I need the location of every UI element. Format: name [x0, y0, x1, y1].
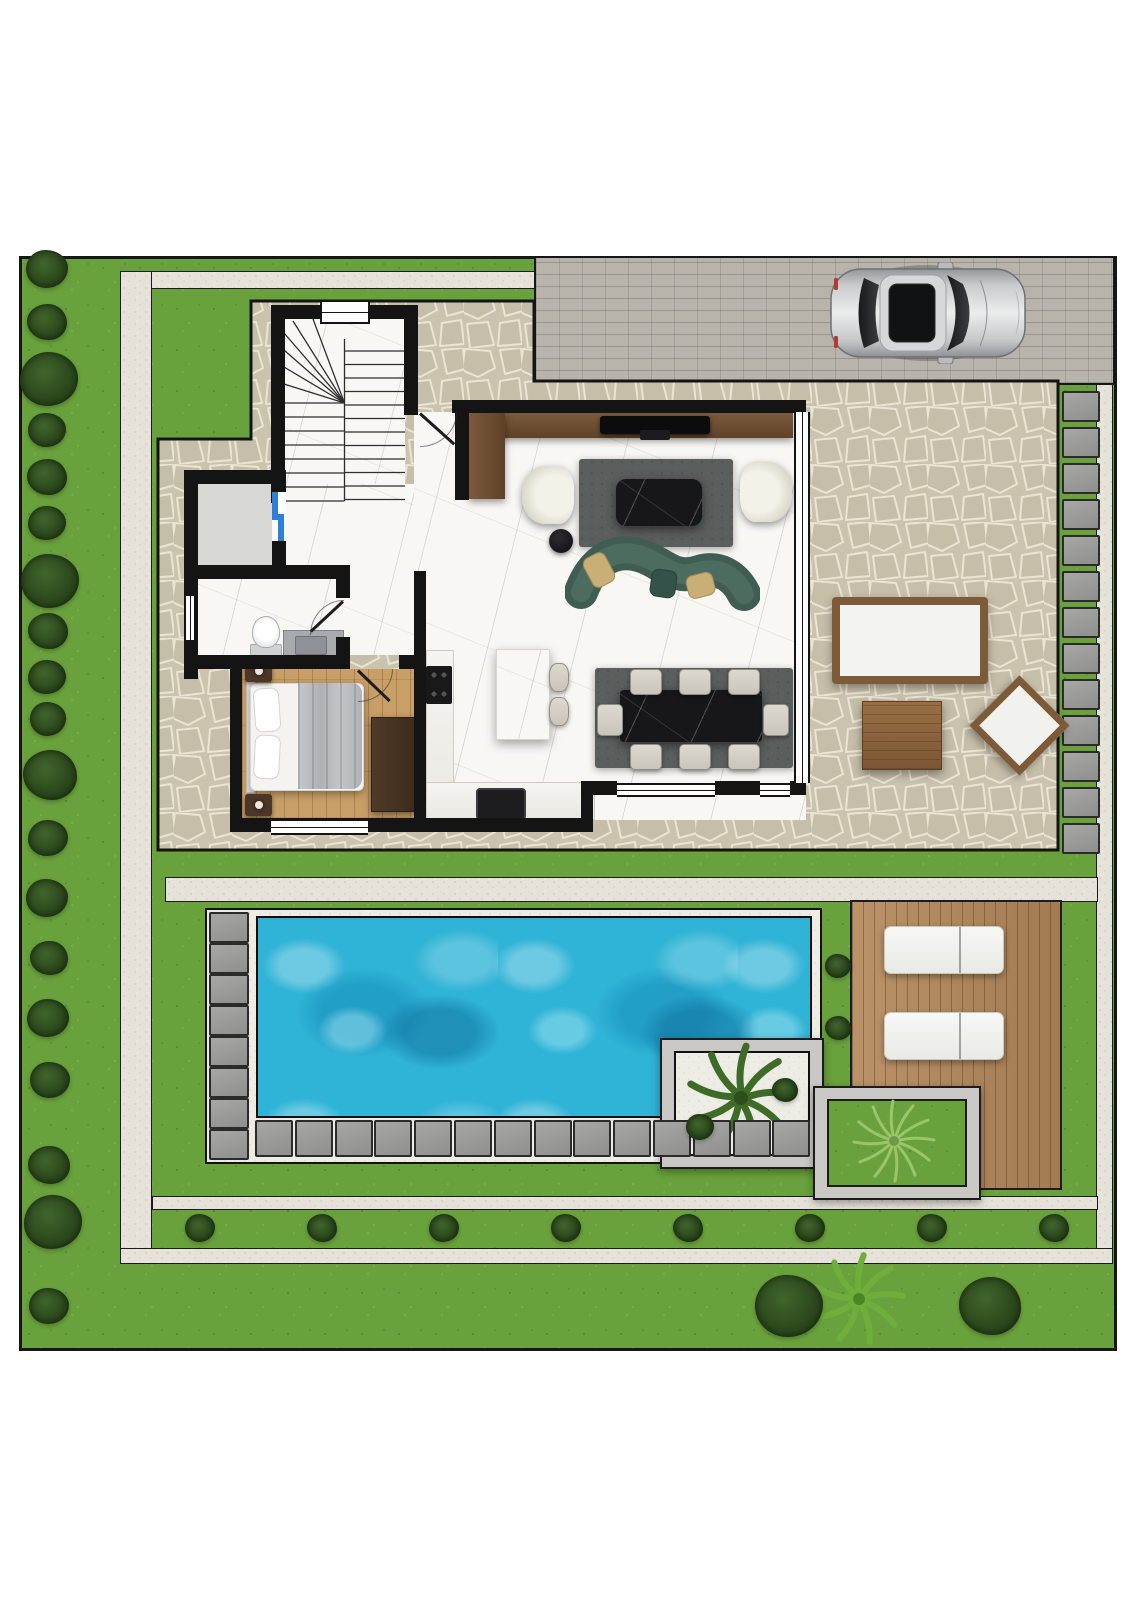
bush-left-column: [23, 750, 77, 800]
wall-dining-jog: [581, 781, 593, 832]
bush-garden-large: [959, 1277, 1021, 1334]
bush-bottom-row: [795, 1214, 825, 1242]
dining-chair: [679, 744, 711, 770]
paver-pool-bottom: [454, 1120, 492, 1157]
wall-dining-bottom-1: [593, 781, 617, 795]
feather-plant: [846, 1093, 942, 1189]
bush-bottom-row: [673, 1214, 703, 1242]
paver-pool-left: [209, 974, 249, 1005]
nightstand-bottom: [245, 794, 272, 816]
dining-chair: [763, 704, 789, 736]
kitchen-sink: [476, 788, 526, 820]
wall-storage-bottom: [184, 565, 350, 579]
wall-bedroom-top-2: [399, 655, 426, 669]
paver-pool-bottom: [295, 1120, 333, 1157]
stepping-stone-right: [1062, 427, 1100, 458]
curved-sofa: [565, 528, 760, 624]
bush-planter: [772, 1078, 798, 1102]
bush-left-column: [30, 941, 68, 976]
armchair-right: [740, 462, 792, 522]
sun-lounger: [884, 926, 1004, 974]
sun-lounger: [884, 1012, 1004, 1060]
stepping-stone-right: [1062, 643, 1100, 674]
bush-left-column: [27, 459, 67, 496]
paver-pool-left: [209, 1036, 249, 1067]
wall-kitchen-left: [414, 571, 426, 832]
bush-left-column: [24, 1195, 82, 1248]
wall-storage-top: [184, 470, 285, 484]
paver-pool-bottom: [494, 1120, 532, 1157]
staircase: [271, 303, 418, 505]
wall-storage-stub-bottom: [272, 541, 286, 565]
wall-bath-right-top: [336, 565, 350, 598]
car: [828, 262, 1028, 364]
wall-stairs-right: [404, 305, 418, 415]
window-bedroom: [271, 819, 368, 835]
bush-left-column: [27, 304, 67, 341]
paver-pool-bottom: [772, 1120, 810, 1157]
paver-pool-bottom: [613, 1120, 651, 1157]
paver-pool-left: [209, 1005, 249, 1036]
dining-chair: [630, 744, 662, 770]
dining-chair: [630, 669, 662, 695]
dining-chair: [728, 669, 760, 695]
palm-tree-garden: [811, 1251, 907, 1347]
bush-left-column: [30, 702, 66, 735]
sofa-cushion-2: [649, 568, 678, 598]
car-taillight-top: [834, 278, 838, 290]
wall-corner-se: [790, 781, 806, 795]
coffee-table: [616, 479, 702, 526]
stepping-stone-right: [1062, 391, 1100, 422]
bed-pillow-bottom: [253, 734, 281, 779]
paver-pool-left: [209, 912, 249, 943]
stepping-stone-right: [1062, 787, 1100, 818]
garden-path-top: [120, 271, 536, 289]
paver-pool-left: [209, 1098, 249, 1129]
wardrobe: [371, 717, 416, 812]
pool-zone-top-band: [165, 877, 1098, 902]
bar-stool: [549, 663, 569, 692]
kitchen-island: [496, 649, 550, 740]
tv-stand: [640, 430, 670, 440]
garden-path-bottom: [120, 1248, 1113, 1264]
car-sunroof: [889, 284, 935, 342]
bush-bottom-row: [551, 1214, 581, 1242]
floor-storage: [198, 484, 272, 565]
dining-chair: [728, 744, 760, 770]
dining-chair: [597, 704, 623, 736]
garden-path-left: [120, 271, 152, 1264]
paver-pool-left: [209, 943, 249, 974]
stepping-stone-right: [1062, 571, 1100, 602]
wall-storage-stub-top: [272, 470, 286, 492]
bush-bottom-row: [917, 1214, 947, 1242]
site-plan-page: [0, 0, 1131, 1600]
paver-pool-left: [209, 1067, 249, 1098]
window-staircase: [320, 300, 370, 324]
paver-pool-left: [209, 1129, 249, 1160]
wall-entry-side: [455, 412, 469, 500]
stepping-stone-right: [1062, 463, 1100, 494]
stepping-stone-right: [1062, 715, 1100, 746]
bed-pillow-top: [252, 687, 281, 733]
wall-dining-bottom-2: [715, 781, 760, 795]
bush-bottom-row: [429, 1214, 459, 1242]
dining-chair: [679, 669, 711, 695]
bush-left-column: [28, 613, 68, 650]
terrace-table: [862, 701, 942, 770]
bush-pool-side: [825, 1016, 851, 1040]
car-taillight-bottom: [834, 336, 838, 348]
wall-living-top: [452, 400, 806, 413]
bush-bottom-row: [185, 1214, 215, 1242]
wall-bedroom-left: [230, 655, 242, 832]
window-bathroom: [184, 596, 196, 640]
terrace-bench: [832, 597, 988, 684]
cooktop: [426, 666, 452, 704]
stepping-stone-right: [1062, 751, 1100, 782]
dining-table: [620, 690, 762, 742]
wall-bath-bedroom: [184, 655, 350, 669]
bush-bottom-row: [1039, 1214, 1069, 1242]
armchair-left: [522, 466, 574, 524]
paver-pool-bottom: [335, 1120, 373, 1157]
wall-bath-right-bottom: [336, 637, 350, 669]
window-dining-south-1: [617, 783, 715, 797]
stepping-stone-right: [1062, 535, 1100, 566]
toilet-bowl: [252, 616, 280, 648]
window-dining-south-2: [760, 783, 790, 797]
bed-blanket: [298, 683, 362, 789]
paver-pool-bottom: [255, 1120, 293, 1157]
wall-kitchen-bottom: [414, 818, 593, 832]
stepping-stone-right: [1062, 823, 1100, 854]
paver-pool-bottom: [534, 1120, 572, 1157]
bush-left-column: [28, 1146, 70, 1185]
stepping-stone-right: [1062, 679, 1100, 710]
window-living-east: [794, 412, 810, 783]
paver-pool-bottom: [573, 1120, 611, 1157]
paver-pool-bottom: [374, 1120, 412, 1157]
bush-left-column: [20, 352, 78, 405]
bush-bottom-row: [307, 1214, 337, 1242]
paver-pool-bottom: [414, 1120, 452, 1157]
bar-stool: [549, 697, 569, 726]
stepping-stone-right: [1062, 499, 1100, 530]
vanity-sink: [295, 636, 327, 655]
paver-pool-bottom: [733, 1120, 771, 1157]
stepping-stone-right: [1062, 607, 1100, 638]
tv-console-side: [469, 413, 505, 499]
storage-door-blue-2: [278, 514, 284, 541]
